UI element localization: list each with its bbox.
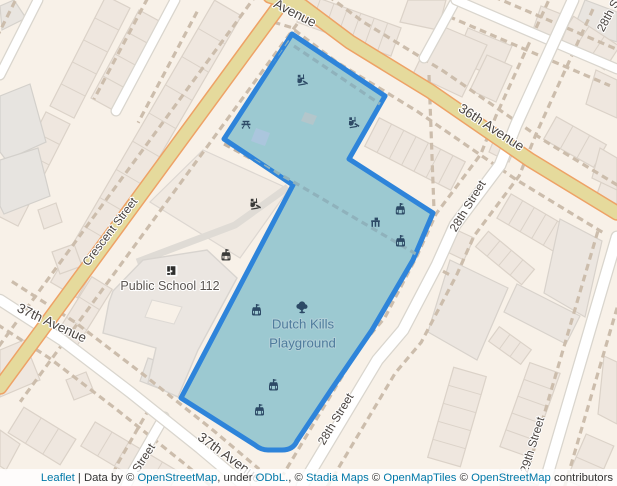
svg-text:Public School 112: Public School 112 [120,279,219,293]
svg-text:Playground: Playground [269,336,336,351]
svg-text:Leaflet | Data by © OpenStreet: Leaflet | Data by © OpenStreetMap, under… [41,472,613,484]
svg-text:Dutch Kills: Dutch Kills [272,317,335,332]
